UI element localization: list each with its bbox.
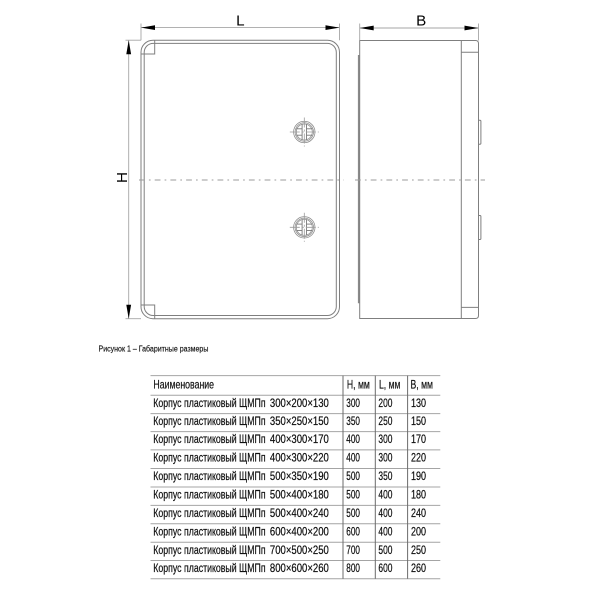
svg-text:700: 700 bbox=[346, 545, 360, 558]
svg-text:240: 240 bbox=[411, 508, 426, 520]
svg-text:L: L bbox=[236, 12, 244, 29]
svg-text:Наименование: Наименование bbox=[153, 379, 214, 391]
svg-text:400: 400 bbox=[346, 452, 360, 465]
svg-text:600: 600 bbox=[378, 563, 392, 576]
svg-text:Корпус пластиковый ЩМПп: Корпус пластиковый ЩМПп bbox=[153, 398, 265, 410]
svg-text:400: 400 bbox=[346, 434, 360, 447]
svg-text:300: 300 bbox=[378, 452, 392, 465]
svg-text:300: 300 bbox=[378, 434, 392, 447]
svg-text:190: 190 bbox=[411, 471, 426, 483]
svg-text:500: 500 bbox=[346, 508, 360, 521]
svg-text:Корпус пластиковый ЩМПп: Корпус пластиковый ЩМПп bbox=[153, 434, 265, 446]
svg-text:400: 400 bbox=[378, 489, 392, 502]
svg-text:350: 350 bbox=[378, 471, 392, 484]
svg-text:Корпус пластиковый ЩМПп: Корпус пластиковый ЩМПп bbox=[153, 526, 265, 538]
svg-text:H: H bbox=[114, 172, 131, 183]
svg-text:500: 500 bbox=[346, 489, 360, 502]
svg-text:170: 170 bbox=[411, 434, 426, 446]
svg-text:Рисунок 1 – Габаритные размеры: Рисунок 1 – Габаритные размеры bbox=[99, 344, 209, 353]
svg-text:800×600×260: 800×600×260 bbox=[270, 562, 329, 575]
svg-text:500×400×240: 500×400×240 bbox=[270, 507, 329, 520]
svg-text:350: 350 bbox=[346, 416, 360, 429]
svg-text:150: 150 bbox=[411, 416, 426, 428]
svg-text:350×250×150: 350×250×150 bbox=[270, 415, 329, 428]
svg-text:800: 800 bbox=[346, 563, 360, 576]
svg-text:500×400×180: 500×400×180 bbox=[270, 489, 329, 502]
svg-text:400: 400 bbox=[378, 508, 392, 521]
svg-text:500: 500 bbox=[378, 545, 392, 558]
svg-text:H, мм: H, мм bbox=[347, 379, 370, 392]
svg-text:130: 130 bbox=[411, 398, 426, 410]
svg-text:500×350×190: 500×350×190 bbox=[270, 470, 329, 483]
svg-text:L, мм: L, мм bbox=[379, 379, 401, 392]
svg-text:300×200×130: 300×200×130 bbox=[270, 397, 329, 410]
svg-text:400×300×220: 400×300×220 bbox=[270, 452, 329, 465]
svg-text:400×300×170: 400×300×170 bbox=[270, 433, 329, 446]
svg-text:Корпус пластиковый ЩМПп: Корпус пластиковый ЩМПп bbox=[153, 490, 265, 502]
svg-text:Корпус пластиковый ЩМПп: Корпус пластиковый ЩМПп bbox=[153, 563, 265, 575]
svg-text:250: 250 bbox=[411, 545, 426, 557]
svg-text:Корпус пластиковый ЩМПп: Корпус пластиковый ЩМПп bbox=[153, 416, 265, 428]
svg-text:260: 260 bbox=[411, 563, 426, 575]
svg-text:180: 180 bbox=[411, 490, 426, 502]
svg-text:300: 300 bbox=[346, 398, 360, 411]
svg-text:220: 220 bbox=[411, 453, 426, 465]
svg-text:250: 250 bbox=[378, 416, 392, 429]
svg-text:400: 400 bbox=[378, 526, 392, 539]
svg-text:Корпус пластиковый ЩМПп: Корпус пластиковый ЩМПп bbox=[153, 471, 265, 483]
svg-text:500: 500 bbox=[346, 471, 360, 484]
svg-text:600×400×200: 600×400×200 bbox=[270, 526, 329, 539]
svg-text:200: 200 bbox=[411, 526, 426, 538]
svg-text:700×500×250: 700×500×250 bbox=[270, 544, 329, 557]
svg-text:Корпус пластиковый ЩМПп: Корпус пластиковый ЩМПп bbox=[153, 545, 265, 557]
svg-text:Корпус пластиковый ЩМПп: Корпус пластиковый ЩМПп bbox=[153, 508, 265, 520]
svg-text:600: 600 bbox=[346, 526, 360, 539]
svg-text:B, мм: B, мм bbox=[411, 379, 433, 392]
svg-text:200: 200 bbox=[378, 398, 392, 411]
svg-text:B: B bbox=[416, 12, 426, 29]
svg-text:Корпус пластиковый ЩМПп: Корпус пластиковый ЩМПп bbox=[153, 452, 265, 464]
